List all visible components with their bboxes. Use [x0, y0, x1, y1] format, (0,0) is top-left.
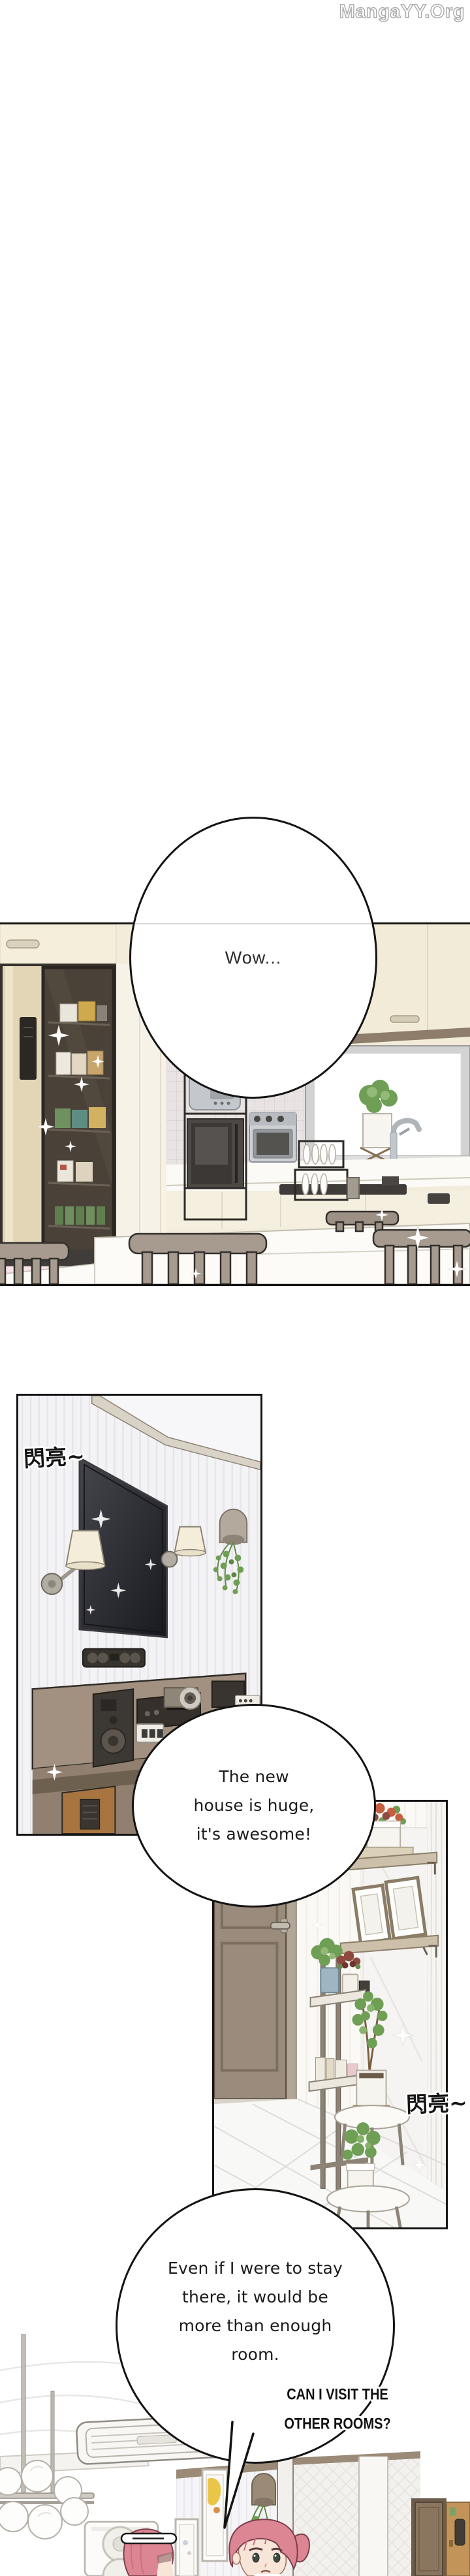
tan-door [446, 2502, 470, 2576]
speech-bubble-new-house: The new house is huge, it's awesome! [132, 1704, 376, 1908]
soundbar [83, 1649, 145, 1667]
refrigerator [0, 964, 116, 1269]
speech-text-wow: Wow... [225, 948, 282, 968]
projector-lens [164, 1687, 201, 1709]
shout-text: CAN I VISIT THE OTHER ROOMS? [272, 2380, 403, 2439]
speech-bubble-wow: Wow... [129, 817, 377, 1099]
site-watermark: MangaYY.Org [339, 1, 465, 23]
toaster-oven [249, 1112, 296, 1162]
sfx-sparkle-tv: 閃亮~ [23, 1439, 86, 1473]
manga-page: MangaYY.Org [0, 0, 470, 2576]
digital-clock [136, 1724, 164, 1742]
cabinet-above-fridge [0, 924, 116, 964]
speech-bubble-tail [214, 2417, 261, 2534]
framed-art-small [176, 2519, 198, 2576]
panel-edge-showthrough [131, 923, 375, 924]
speech-text-stay: Even if I were to stay there, it would b… [168, 2254, 343, 2398]
dark-door [411, 2498, 446, 2576]
door-handle [271, 1923, 290, 1929]
sfx-sparkle-hall: 閃亮~ [405, 2085, 467, 2118]
pc-tower [62, 1786, 115, 1834]
speech-text-new-house: The new house is huge, it's awesome! [194, 1763, 315, 1849]
small-dash-bubble [121, 2534, 176, 2543]
speaker [93, 1689, 133, 1767]
